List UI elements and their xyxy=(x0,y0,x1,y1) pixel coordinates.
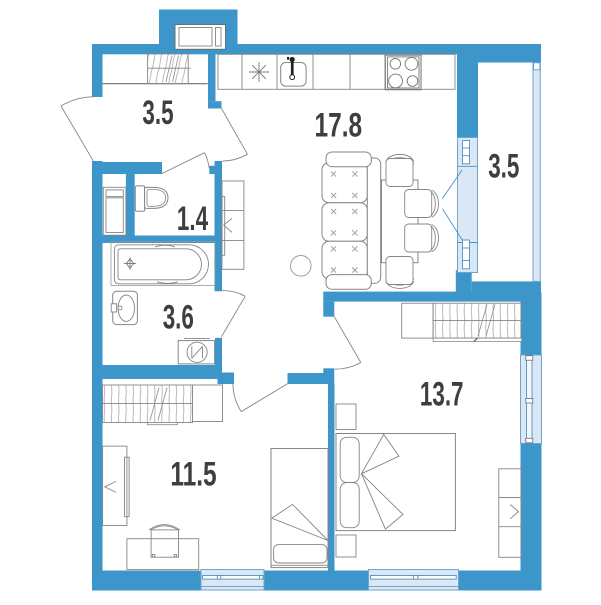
svg-text:17.8: 17.8 xyxy=(314,106,362,144)
svg-text:11.5: 11.5 xyxy=(170,456,216,494)
svg-text:1.4: 1.4 xyxy=(177,200,208,238)
svg-text:3.6: 3.6 xyxy=(163,299,194,337)
svg-text:3.5: 3.5 xyxy=(488,148,519,186)
svg-text:3.5: 3.5 xyxy=(142,94,173,132)
svg-text:13.7: 13.7 xyxy=(420,376,464,414)
